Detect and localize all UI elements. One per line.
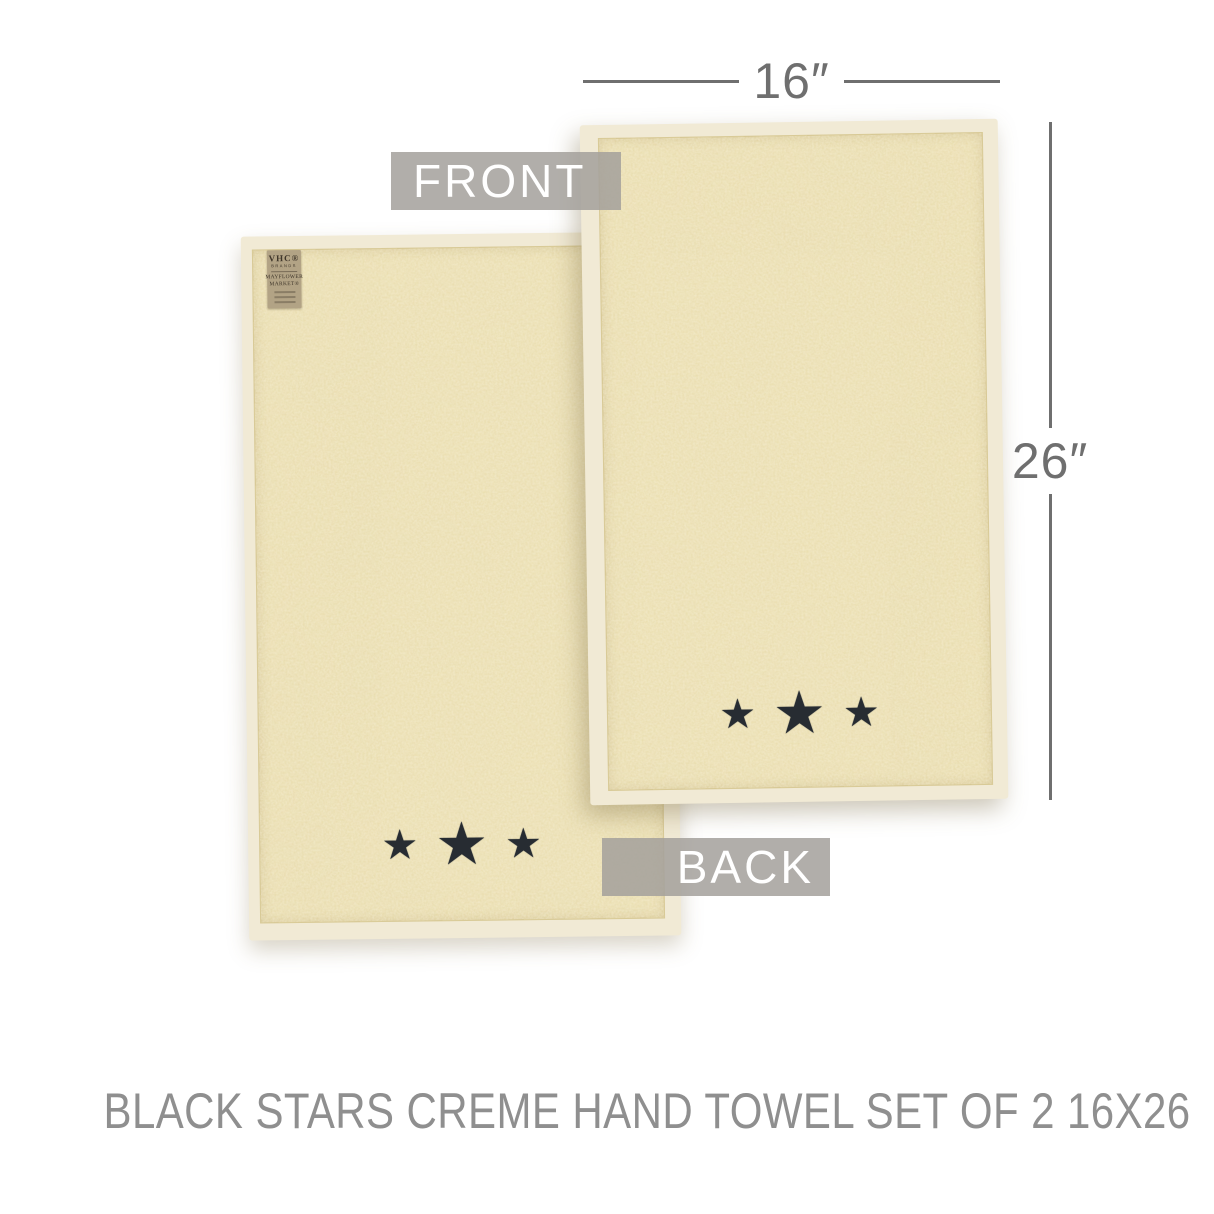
star-icon: ★: [505, 823, 542, 864]
height-dimension: 26″: [1008, 122, 1092, 800]
brand-tag: VHC® BRANDS MAYFLOWER MARKET®: [267, 250, 302, 308]
product-title: BLACK STARS CREME HAND TOWEL SET OF 2 16…: [0, 1082, 1214, 1140]
dimension-line-right: [844, 80, 1000, 83]
towel-front-fabric: ★ ★ ★: [598, 132, 993, 791]
dimension-line-top: [1049, 122, 1052, 428]
width-dimension-label: 16″: [739, 56, 843, 106]
brand-tag-subname: BRANDS: [271, 263, 297, 269]
star-icon: ★: [719, 694, 756, 736]
front-label: FRONT: [391, 152, 621, 210]
product-title-text: BLACK STARS CREME HAND TOWEL SET OF 2 16…: [104, 1082, 1191, 1140]
brand-tag-fineprint-line: [274, 296, 295, 298]
width-dimension: 16″: [583, 54, 1000, 108]
back-label: BACK: [602, 838, 830, 896]
star-icon: ★: [773, 684, 827, 744]
towel-front-view: ★ ★ ★: [580, 119, 1009, 805]
dimension-line-bottom: [1049, 494, 1052, 800]
product-image-canvas: 16″ 26″ ★ ★ ★: [0, 0, 1214, 1214]
star-embroidery-row: ★ ★ ★: [608, 681, 992, 746]
brand-tag-fineprint-line: [274, 291, 295, 293]
brand-tag-fineprint-line: [274, 301, 295, 303]
star-icon: ★: [381, 825, 418, 866]
brand-tag-divider: [271, 271, 297, 272]
star-icon: ★: [843, 692, 880, 734]
brand-tag-name: VHC®: [269, 254, 300, 263]
height-dimension-label: 26″: [1012, 428, 1088, 494]
brand-tag-collection-line2: MARKET®: [269, 281, 299, 288]
dimension-line-left: [583, 80, 739, 83]
star-icon: ★: [435, 815, 489, 875]
